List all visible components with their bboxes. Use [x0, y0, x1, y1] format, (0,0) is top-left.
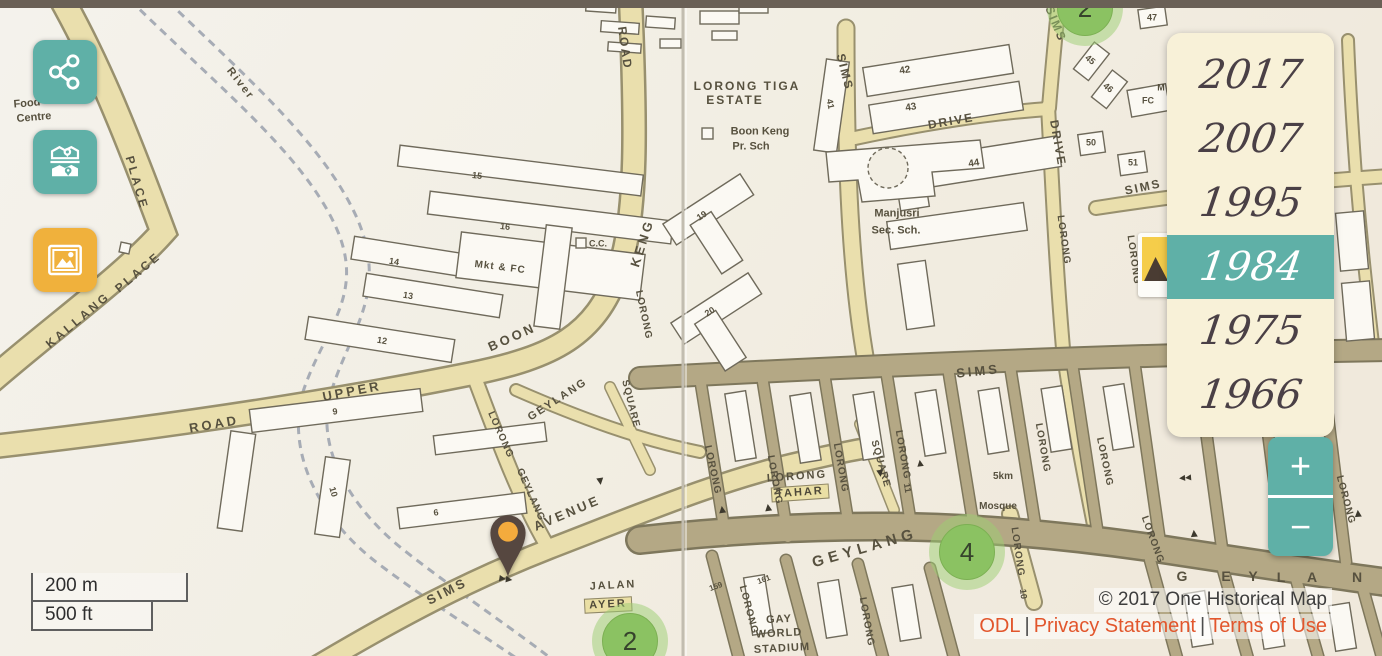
photo-thumbnail [1142, 237, 1168, 281]
privacy-statement-link[interactable]: Privacy Statement [1034, 615, 1196, 637]
image-icon [45, 240, 85, 280]
map-photo-compare-icon [46, 143, 84, 181]
scale-metric: 200 m [31, 573, 188, 602]
share-icon [46, 53, 84, 91]
zoom-out-button[interactable]: − [1268, 498, 1333, 556]
year-selector-panel: 2017 2007 1995 1984 1975 1966 [1167, 33, 1334, 437]
year-option-1975[interactable]: 1975 [1167, 299, 1334, 363]
marker-count: 4 [960, 537, 974, 568]
year-option-2007[interactable]: 2007 [1167, 107, 1334, 171]
year-option-1995[interactable]: 1995 [1167, 171, 1334, 235]
zoom-in-button[interactable]: + [1268, 437, 1333, 495]
link-separator: | [1020, 615, 1033, 637]
copyright-text: © 2017 One Historical Map [1094, 588, 1332, 612]
location-pin-marker[interactable] [486, 512, 530, 580]
year-option-1966[interactable]: 1966 [1167, 363, 1334, 427]
marker-count: 2 [623, 626, 637, 656]
zoom-control: + − [1268, 437, 1333, 556]
terms-of-use-link[interactable]: Terms of Use [1209, 615, 1327, 637]
historical-map-viewer: FoodCentreRiverPLACEKALLANGPLACEROADUPPE… [0, 0, 1382, 656]
share-button[interactable] [33, 40, 97, 104]
scale-imperial: 500 ft [31, 602, 153, 631]
year-option-2017[interactable]: 2017 [1167, 43, 1334, 107]
odl-link[interactable]: ODL [979, 615, 1020, 637]
top-bar [0, 0, 1382, 8]
photos-button[interactable] [33, 228, 97, 292]
compare-maps-button[interactable] [33, 130, 97, 194]
link-separator: | [1196, 615, 1209, 637]
scale-control: 200 m 500 ft [31, 573, 188, 631]
year-option-1984-selected[interactable]: 1984 [1167, 235, 1334, 299]
attribution: © 2017 One Historical Map ODL|Privacy St… [974, 588, 1332, 639]
